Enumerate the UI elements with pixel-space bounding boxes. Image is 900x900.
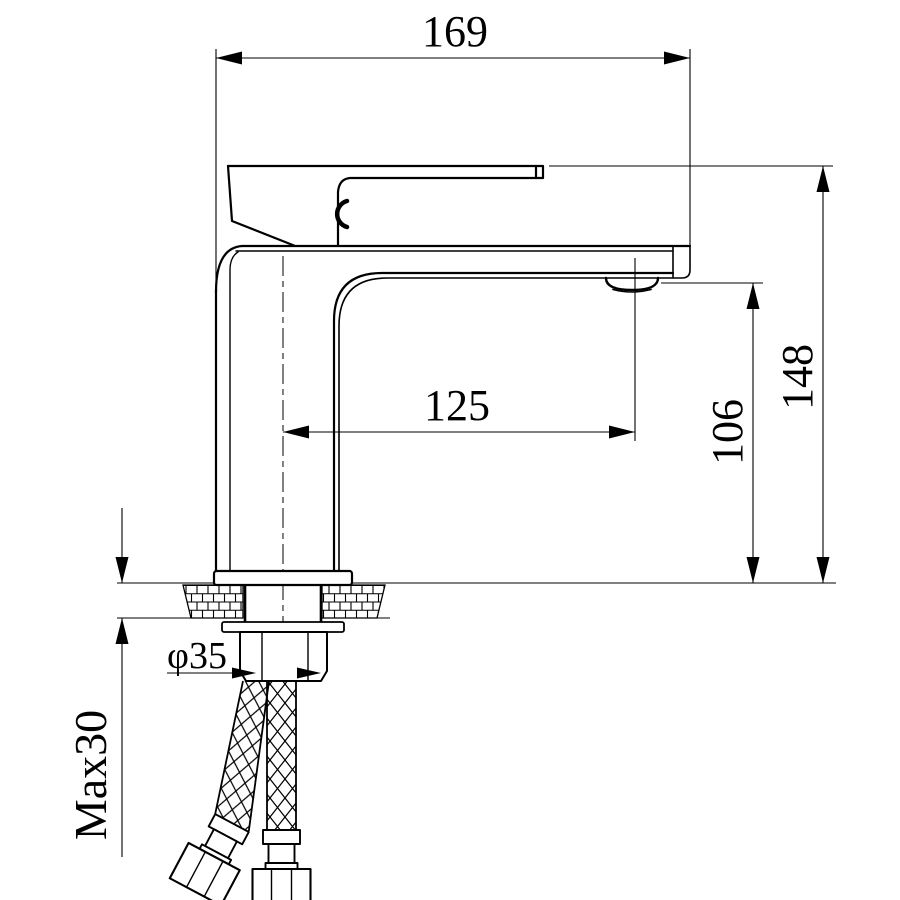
faucet-dimension-drawing: 169 148 106 125 φ35 Max30 <box>0 0 900 900</box>
lever-underside <box>338 178 536 245</box>
hose-left-braid <box>215 681 269 831</box>
lever-top-edge <box>228 166 543 178</box>
arrow-169-left <box>216 52 242 65</box>
dim-shank-diameter-label: φ35 <box>167 635 227 677</box>
spout-underside-outer <box>334 273 673 571</box>
arrow-106-top <box>747 283 760 309</box>
arrow-148-bottom <box>817 557 830 583</box>
arrow-max30-down <box>116 557 129 583</box>
arrow-125-right <box>609 426 635 439</box>
aerator <box>606 278 658 292</box>
dim-outlet-height-label: 106 <box>703 399 752 465</box>
arrow-148-top <box>817 166 830 192</box>
lever-left-edge <box>228 166 294 246</box>
supply-hose-left <box>170 681 269 900</box>
arrow-max30-up <box>116 618 129 644</box>
arrow-125-left <box>283 426 309 439</box>
spout-underside-inner <box>339 246 690 571</box>
technical-drawing-canvas: 169 148 106 125 φ35 Max30 <box>0 0 900 900</box>
dim-overall-height-label: 148 <box>773 344 822 410</box>
aerator-lip <box>606 278 658 290</box>
lever-handle <box>228 166 543 246</box>
supply-hoses <box>170 681 311 900</box>
deck-section <box>183 585 385 618</box>
body-left-inner-edge <box>230 252 238 571</box>
arrow-169-right <box>664 52 690 65</box>
base-flange <box>214 571 352 585</box>
faucet-body <box>216 166 690 571</box>
fitting-collar <box>263 830 300 844</box>
lever-pivot-arc <box>337 201 347 227</box>
dim-overall-width-label: 169 <box>422 7 488 56</box>
dimension-labels: 169 148 106 125 φ35 Max30 <box>65 7 822 840</box>
deck-hatch-left <box>183 585 243 618</box>
washer <box>222 622 344 632</box>
hose-right-braid <box>267 681 296 830</box>
arrow-106-bottom <box>747 557 760 583</box>
dim-max-thickness-label: Max30 <box>65 710 116 840</box>
dim-spout-reach-label: 125 <box>424 381 490 430</box>
body-shoulder <box>216 246 242 292</box>
fitting-nut <box>253 869 311 900</box>
fitting-neck <box>269 844 295 863</box>
deck-hatch-right <box>322 585 385 618</box>
hose-right-fitting <box>253 830 311 900</box>
